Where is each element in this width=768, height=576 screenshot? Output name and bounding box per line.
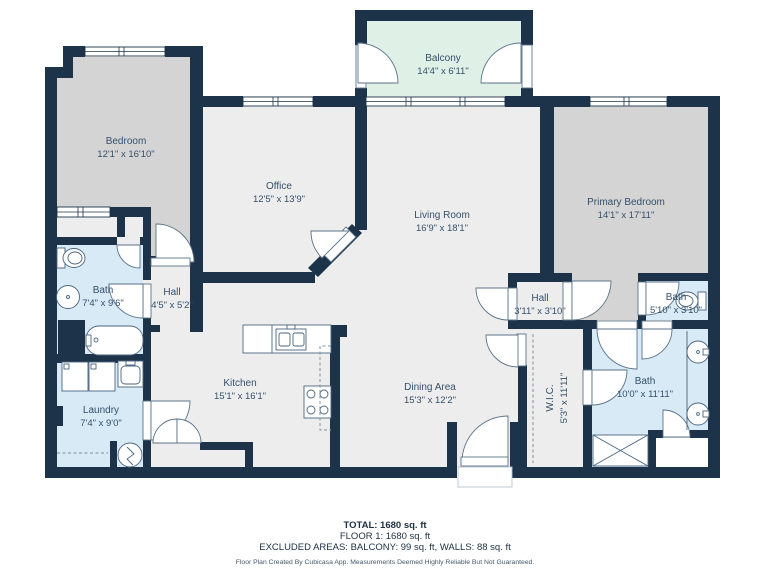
vanity-sink-bottom-icon — [687, 403, 709, 425]
svg-text:Bath: Bath — [635, 376, 656, 387]
svg-text:Office: Office — [266, 181, 292, 192]
water-closet-floor — [656, 438, 708, 467]
svg-text:Bath: Bath — [93, 285, 114, 296]
svg-text:7'4" x 9'6": 7'4" x 9'6" — [82, 298, 124, 309]
svg-text:14'4" x 6'11": 14'4" x 6'11" — [417, 66, 468, 77]
stove-icon — [304, 386, 331, 418]
svg-text:Bedroom: Bedroom — [106, 136, 147, 147]
svg-text:16'9" x 18'1": 16'9" x 18'1" — [416, 223, 468, 234]
svg-text:Kitchen: Kitchen — [223, 378, 256, 389]
shower-icon — [593, 435, 648, 466]
bathtub-icon — [86, 326, 143, 355]
svg-text:12'5" x 13'9": 12'5" x 13'9" — [253, 194, 305, 205]
svg-text:15'3" x 12'2": 15'3" x 12'2" — [404, 395, 456, 406]
svg-text:7'4" x 9'0": 7'4" x 9'0" — [80, 418, 122, 429]
svg-text:5'3" x 11'11": 5'3" x 11'11" — [559, 373, 570, 424]
kitchen-sink-icon — [276, 325, 306, 350]
svg-text:14'1" x 17'11": 14'1" x 17'11" — [598, 210, 655, 221]
svg-text:Hall: Hall — [531, 293, 548, 304]
svg-text:Balcony: Balcony — [425, 53, 461, 64]
dryer-icon — [89, 362, 115, 391]
washer-icon — [62, 362, 88, 391]
floor-plan-page: Balcony 14'4" x 6'11" Bedroom 12'1" x 16… — [0, 0, 768, 576]
svg-text:Bath: Bath — [666, 292, 687, 303]
svg-text:3'11" x 3'10": 3'11" x 3'10" — [514, 306, 565, 317]
svg-text:5'10" x 3'10": 5'10" x 3'10" — [650, 305, 702, 316]
svg-text:Primary Bedroom: Primary Bedroom — [587, 197, 665, 208]
floor-plan-canvas: Balcony 14'4" x 6'11" Bedroom 12'1" x 16… — [0, 0, 768, 576]
living-room-sliding-window-icon — [366, 97, 505, 106]
disclaimer-text: Floor Plan Created By Cubicasa App. Meas… — [236, 559, 535, 566]
svg-text:4'5" x 5'2": 4'5" x 5'2" — [151, 300, 193, 311]
excluded-areas-text: EXCLUDED AREAS: BALCONY: 99 sq. ft, WALL… — [259, 542, 511, 553]
svg-text:Hall: Hall — [163, 287, 180, 298]
round-sink-icon — [57, 286, 80, 309]
svg-text:Living Room: Living Room — [414, 210, 470, 221]
bedroom-closet-sliding-door-icon — [57, 207, 110, 217]
svg-text:Dining Area: Dining Area — [404, 382, 456, 393]
summary-footer: TOTAL: 1680 sq. ft FLOOR 1: 1680 sq. ft … — [236, 520, 535, 566]
svg-text:Laundry: Laundry — [83, 405, 119, 416]
water-heater-icon — [118, 443, 142, 467]
laundry-sink-icon — [118, 361, 143, 387]
primary-bedroom-window-icon — [590, 97, 667, 106]
total-area-text: TOTAL: 1680 sq. ft — [343, 520, 427, 531]
svg-text:15'1" x 16'1": 15'1" x 16'1" — [214, 391, 266, 402]
office-window-icon — [243, 97, 313, 106]
floor-area-text: FLOOR 1: 1680 sq. ft — [340, 531, 431, 542]
toilet-icon — [57, 248, 85, 268]
svg-text:W.I.C.: W.I.C. — [545, 384, 556, 411]
bedroom-window-icon — [85, 47, 165, 56]
primary-bedroom-floor — [554, 106, 708, 273]
svg-text:12'1" x 16'10": 12'1" x 16'10" — [97, 149, 154, 160]
svg-text:10'0" x 11'11": 10'0" x 11'11" — [617, 389, 673, 400]
